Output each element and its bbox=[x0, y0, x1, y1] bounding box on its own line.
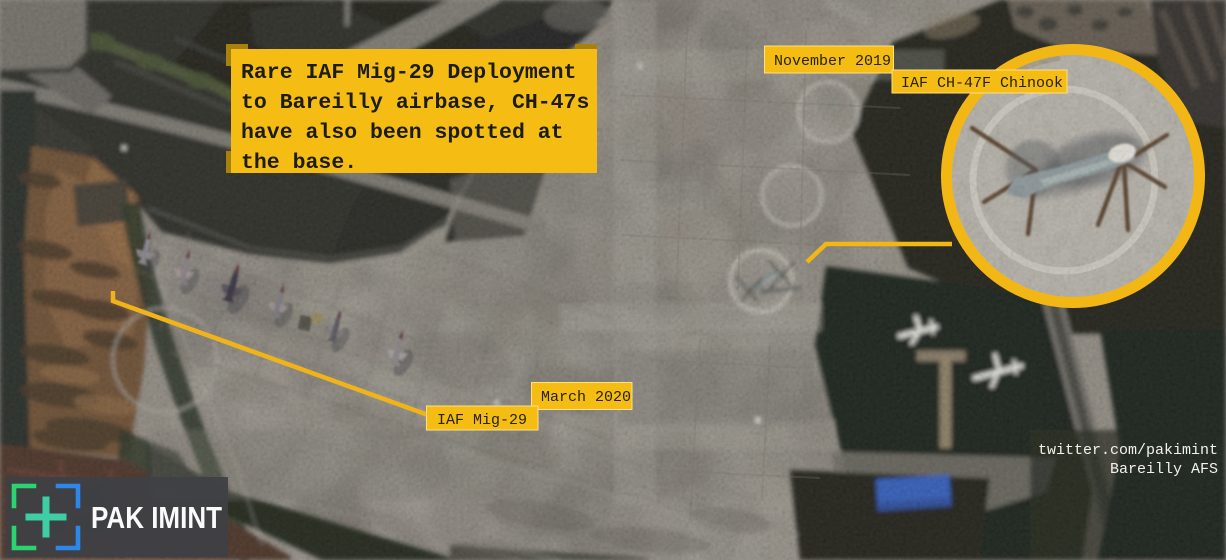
svg-text:November 2019: November 2019 bbox=[774, 53, 891, 70]
svg-text:Rare IAF Mig-29 Deployment: Rare IAF Mig-29 Deployment bbox=[241, 61, 576, 85]
svg-text:PAK IMINT: PAK IMINT bbox=[91, 500, 222, 535]
svg-text:to Bareilly airbase, CH-47s: to Bareilly airbase, CH-47s bbox=[241, 91, 589, 115]
svg-text:IAF Mig-29: IAF Mig-29 bbox=[437, 412, 527, 429]
svg-text:twitter.com/pakimint: twitter.com/pakimint bbox=[1038, 442, 1218, 459]
svg-text:Bareilly AFS: Bareilly AFS bbox=[1110, 461, 1218, 478]
svg-text:March 2020: March 2020 bbox=[541, 389, 631, 406]
svg-text:have also been spotted at: have also been spotted at bbox=[241, 121, 564, 145]
svg-text:the base.: the base. bbox=[241, 151, 357, 175]
svg-text:IAF CH-47F Chinook: IAF CH-47F Chinook bbox=[901, 75, 1063, 92]
